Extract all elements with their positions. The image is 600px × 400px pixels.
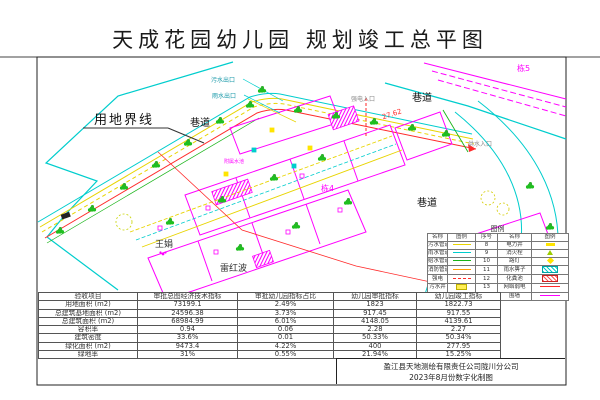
stats-value: 0.06 bbox=[238, 326, 334, 334]
orange-line-symbol bbox=[453, 269, 471, 270]
stats-value: 917.55 bbox=[417, 309, 501, 317]
stats-row: 建筑密度33.6%0.0150.33%50.34% bbox=[39, 334, 501, 342]
stats-value: 68984.99 bbox=[138, 317, 238, 325]
legend-table: 名称图例序号名称图例 污水管道8电力井雨水管道9消火栓给水管道10路灯消防管道1… bbox=[427, 233, 569, 301]
legend-row: 雨水管道9消火栓 bbox=[428, 250, 569, 258]
legend-index: 13 bbox=[476, 284, 498, 293]
legend-col-header: 图例 bbox=[532, 234, 569, 242]
tree-icon bbox=[442, 130, 450, 137]
legend-symbol-cell bbox=[448, 250, 476, 258]
legend-symbol-cell bbox=[532, 292, 569, 301]
legend-col-header: 图例 bbox=[448, 234, 476, 242]
building5-label: 栋5 bbox=[517, 63, 530, 73]
stats-value: 4148.05 bbox=[334, 317, 417, 325]
stats-value: 4139.61 bbox=[417, 317, 501, 325]
stats-value: 24596.38 bbox=[138, 309, 238, 317]
stats-col-header: 幼儿园竣工指标 bbox=[417, 293, 501, 301]
legend-symbol-cell bbox=[532, 275, 569, 284]
stats-value: 2.27 bbox=[417, 326, 501, 334]
red-dash-symbol bbox=[453, 278, 471, 279]
magenta-road-lines bbox=[424, 63, 566, 116]
tree-icon bbox=[184, 139, 192, 146]
owner1-label: 王娟 bbox=[155, 238, 173, 250]
legend-row: 污水管道8电力井 bbox=[428, 242, 569, 250]
stats-row-label: 用地面积 (m2) bbox=[39, 301, 138, 309]
tree-icon bbox=[236, 244, 244, 251]
legend-index: 10 bbox=[476, 258, 498, 266]
stats-row: 用地面积 (m2)73199.12.49%18231822.73 bbox=[39, 301, 501, 309]
lamp-mark-symbol bbox=[546, 258, 553, 265]
well-icon bbox=[338, 208, 342, 212]
tree-icon bbox=[318, 154, 326, 161]
sewage-well-icon bbox=[308, 146, 312, 150]
rain-well-icon bbox=[292, 164, 296, 168]
tree-icon bbox=[120, 183, 128, 190]
stats-col-header: 审批幼儿园指标占比 bbox=[238, 293, 334, 301]
legend-item-name: 消火栓 bbox=[498, 250, 532, 258]
flower-icon bbox=[159, 251, 166, 255]
legend-row: 污水井13网络弱电 bbox=[428, 284, 569, 293]
red-line-symbol bbox=[540, 286, 560, 287]
legend-item-name: 污水井 bbox=[428, 284, 448, 293]
rain-outlet-label: 雨水出口 bbox=[212, 92, 236, 100]
legend-col-header: 名称 bbox=[498, 234, 532, 242]
stats-row: 绿化面积 (m2)9473.44.22%400277.95 bbox=[39, 342, 501, 350]
stats-value: 2.28 bbox=[334, 326, 417, 334]
tree-icon bbox=[216, 117, 224, 124]
power-inlet-label: 强电入口 bbox=[351, 95, 375, 103]
legend-item-name: 雨水箅子 bbox=[498, 266, 532, 275]
stats-value: 0.94 bbox=[138, 326, 238, 334]
legend-row: 消防管道11雨水箅子 bbox=[428, 266, 569, 275]
legend-symbol-cell bbox=[448, 275, 476, 284]
tree-icon bbox=[88, 205, 96, 212]
stats-value: 2.49% bbox=[238, 301, 334, 309]
tree-icon bbox=[408, 124, 416, 131]
stats-row-label: 建筑密度 bbox=[39, 334, 138, 342]
tree-icon bbox=[526, 182, 534, 189]
stats-value: 1823 bbox=[334, 301, 417, 309]
hydrant-triangle-symbol bbox=[547, 250, 553, 255]
stats-header-row: 验收项目审批总图经济技术指标审批幼儿园指标占比幼儿园审批指标幼儿园竣工指标 bbox=[39, 293, 501, 301]
legend-item-name: 围墙 bbox=[498, 292, 532, 301]
tree-icon bbox=[292, 222, 300, 229]
cyan-hatch-symbol bbox=[542, 266, 558, 273]
tree-circle-icon bbox=[481, 191, 495, 205]
sewage-outlet-label: 污水出口 bbox=[211, 76, 235, 84]
stats-value: 31% bbox=[138, 351, 238, 359]
water-inlet-label: 供水入口 bbox=[468, 140, 492, 148]
statistics-table: 验收项目审批总图经济技术指标审批幼儿园指标占比幼儿园审批指标幼儿园竣工指标 用地… bbox=[38, 292, 501, 359]
legend-row: 强电12化粪池 bbox=[428, 275, 569, 284]
legend-index: 9 bbox=[476, 250, 498, 258]
tree-icon bbox=[152, 161, 160, 168]
yellow-dash-symbol bbox=[546, 243, 555, 246]
legend-col-header: 名称 bbox=[428, 234, 448, 242]
legend-symbol-cell bbox=[448, 284, 476, 293]
building4-label: 栋4 bbox=[321, 183, 334, 193]
stats-value: 0.01 bbox=[238, 334, 334, 342]
legend-item-name: 给水管道 bbox=[428, 258, 448, 266]
legend-item-name: 路灯 bbox=[498, 258, 532, 266]
legend-col-header: 序号 bbox=[476, 234, 498, 242]
stats-row: 总建筑面积 (m2)68984.996.01%4148.054139.61 bbox=[39, 317, 501, 325]
legend-item-name: 污水管道 bbox=[428, 242, 448, 250]
stats-value: 917.45 bbox=[334, 309, 417, 317]
legend-symbol-cell bbox=[448, 258, 476, 266]
legend-item-name: 化粪池 bbox=[498, 275, 532, 284]
stats-value: 3.73% bbox=[238, 309, 334, 317]
stats-row-label: 绿化面积 (m2) bbox=[39, 342, 138, 350]
cyan-line-symbol bbox=[453, 252, 471, 253]
yellow-line-symbol bbox=[453, 244, 471, 245]
legend-item-name: 强电 bbox=[428, 275, 448, 284]
green-line-symbol bbox=[453, 260, 471, 261]
legend-header-row: 名称图例序号名称图例 bbox=[428, 234, 569, 242]
legend-row: 给水管道10路灯 bbox=[428, 258, 569, 266]
legend-symbol-cell bbox=[532, 250, 569, 258]
stats-value: 73199.1 bbox=[138, 301, 238, 309]
well-icon bbox=[206, 206, 210, 210]
stats-row-label: 总建筑面积 (m2) bbox=[39, 317, 138, 325]
legend-item-name: 消防管道 bbox=[428, 266, 448, 275]
stats-value: 6.01% bbox=[238, 317, 334, 325]
magenta-line-symbol bbox=[540, 295, 560, 296]
sewage-well-icon bbox=[224, 172, 228, 176]
owner2-label: 雷红波 bbox=[220, 262, 247, 274]
tree-icon bbox=[258, 86, 266, 93]
legend-symbol-cell bbox=[532, 258, 569, 266]
stats-value: 1822.73 bbox=[417, 301, 501, 309]
stats-col-header: 幼儿园审批指标 bbox=[334, 293, 417, 301]
stats-row-label: 绿地率 bbox=[39, 351, 138, 359]
well-icon bbox=[158, 226, 162, 230]
stats-value: 4.22% bbox=[238, 342, 334, 350]
legend-symbol-cell bbox=[448, 266, 476, 275]
tree-circle-icon bbox=[116, 214, 132, 230]
company-name: 盈江县天地测绘有限责任公司陇川分公司 bbox=[337, 361, 565, 372]
legend-symbol-cell bbox=[532, 242, 569, 250]
sewage-well-icon bbox=[270, 128, 274, 132]
alley-label-2: 巷道 bbox=[412, 91, 432, 104]
alley-label-1: 巷道 bbox=[190, 116, 210, 129]
stats-value: 277.95 bbox=[417, 342, 501, 350]
legend-item-name: 网络弱电 bbox=[498, 284, 532, 293]
tree-icon bbox=[166, 218, 174, 225]
legend-item-name: 电力井 bbox=[498, 242, 532, 250]
footer-box: 盈江县天地测绘有限责任公司陇川分公司 2023年8月份数字化制图 bbox=[336, 358, 565, 384]
boundary-label: 用地界线 bbox=[94, 113, 154, 128]
stats-row-label: 总建筑基地面积 (m2) bbox=[39, 309, 138, 317]
tree-circle-icon bbox=[497, 203, 509, 215]
legend-index: 11 bbox=[476, 266, 498, 275]
well-icon bbox=[214, 250, 218, 254]
red-hatch-symbol bbox=[542, 275, 558, 282]
street-lamp-icon bbox=[61, 212, 71, 220]
legend-symbol-cell bbox=[532, 284, 569, 293]
stats-value: 50.33% bbox=[334, 334, 417, 342]
legend-index: 8 bbox=[476, 242, 498, 250]
well-icon bbox=[286, 230, 290, 234]
annex-pool-label: 附属水池 bbox=[224, 158, 244, 165]
stats-row: 总建筑基地面积 (m2)24596.383.73%917.45917.55 bbox=[39, 309, 501, 317]
stats-col-header: 验收项目 bbox=[39, 293, 138, 301]
alley-label-3: 巷道 bbox=[417, 196, 437, 209]
rain-well-icon bbox=[252, 148, 256, 152]
tree-icon bbox=[344, 198, 352, 205]
stats-row-label: 容积率 bbox=[39, 326, 138, 334]
stats-value: 0.55% bbox=[238, 351, 334, 359]
legend-index: 12 bbox=[476, 275, 498, 284]
tree-icon bbox=[270, 174, 278, 181]
stats-value: 33.6% bbox=[138, 334, 238, 342]
date-note: 2023年8月份数字化制图 bbox=[337, 372, 565, 383]
well-icon bbox=[300, 174, 304, 178]
legend-item-name: 雨水管道 bbox=[428, 250, 448, 258]
legend-symbol-cell bbox=[448, 242, 476, 250]
yellow-box-symbol bbox=[456, 284, 467, 290]
stats-value: 50.34% bbox=[417, 334, 501, 342]
stats-row: 容积率0.940.062.282.27 bbox=[39, 326, 501, 334]
stats-value: 9473.4 bbox=[138, 342, 238, 350]
stats-col-header: 审批总图经济技术指标 bbox=[138, 293, 238, 301]
legend-symbol-cell bbox=[532, 266, 569, 275]
stats-value: 400 bbox=[334, 342, 417, 350]
